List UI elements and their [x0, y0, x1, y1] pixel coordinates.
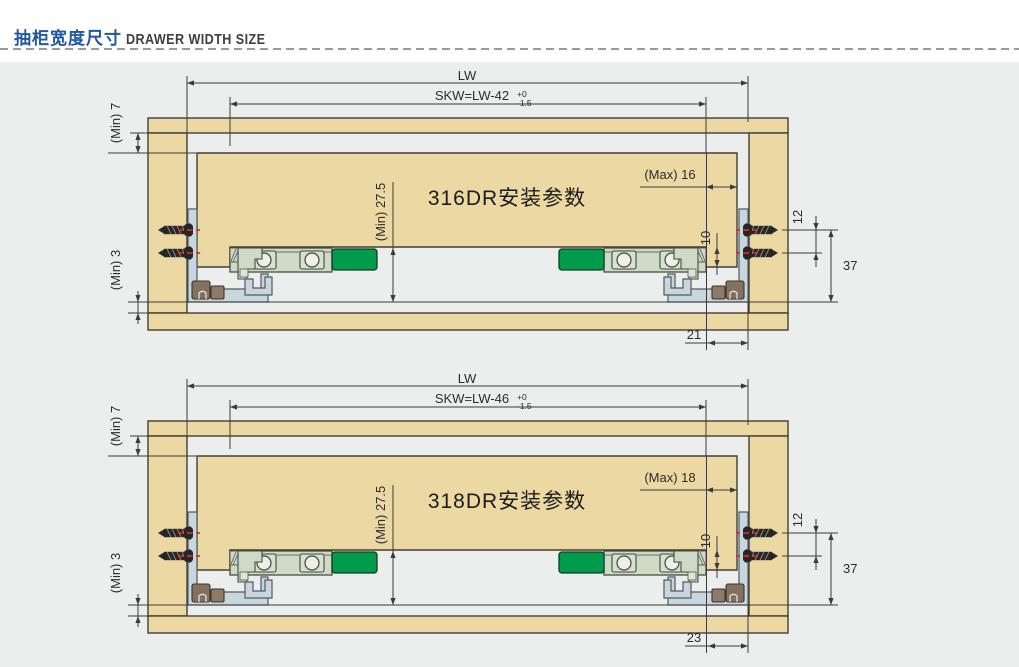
diagram-316dr: LW SKW=LW-42 +0 -1.5 (Min) 7 (Min) 3 (Mi…: [0, 62, 1019, 362]
bottom-offset-label: 23: [687, 630, 701, 645]
section-header: 抽柜宽度尺寸DRAWER WIDTH SIZE: [14, 24, 292, 49]
min7-dim-label: (Min) 7: [108, 406, 123, 446]
min3-dim-label: (Min) 3: [108, 250, 123, 290]
lw-dim-label: LW: [458, 371, 477, 386]
bottom-offset-label: 21: [687, 327, 701, 342]
dim10-label: 10: [698, 231, 713, 245]
skw-tolerance-lower: -1.5: [517, 401, 532, 411]
skw-dim-label: SKW=LW-46: [435, 391, 509, 406]
diagram-318dr: LW SKW=LW-46 +0 -1.5 (Min) 7 (Min) 3 (Mi…: [0, 365, 1019, 665]
dim12-label: 12: [790, 513, 805, 527]
dim37-label: 37: [843, 561, 857, 576]
page: { "header": {"title_zh": "抽柜宽度尺寸", "titl…: [0, 0, 1019, 667]
lw-dim-label: LW: [458, 68, 477, 83]
min-depth-dim-label: (Min) 27.5: [373, 183, 388, 242]
section-title-english: DRAWER WIDTH SIZE: [126, 31, 265, 48]
min7-dim-label: (Min) 7: [108, 103, 123, 143]
min-depth-dim-label: (Min) 27.5: [373, 486, 388, 545]
diagram-title: 318DR安装参数: [428, 490, 586, 513]
skw-tolerance-lower: -1.5: [517, 98, 532, 108]
section-title-chinese: 抽柜宽度尺寸: [14, 29, 122, 48]
dim12-label: 12: [790, 210, 805, 224]
dim10-label: 10: [698, 534, 713, 548]
min3-dim-label: (Min) 3: [108, 553, 123, 593]
max-dim-label: (Max) 16: [644, 167, 695, 182]
diagram-title: 316DR安装参数: [428, 187, 586, 210]
max-dim-label: (Max) 18: [644, 470, 695, 485]
dim37-label: 37: [843, 258, 857, 273]
dashed-divider: [0, 48, 1019, 50]
skw-dim-label: SKW=LW-42: [435, 88, 509, 103]
